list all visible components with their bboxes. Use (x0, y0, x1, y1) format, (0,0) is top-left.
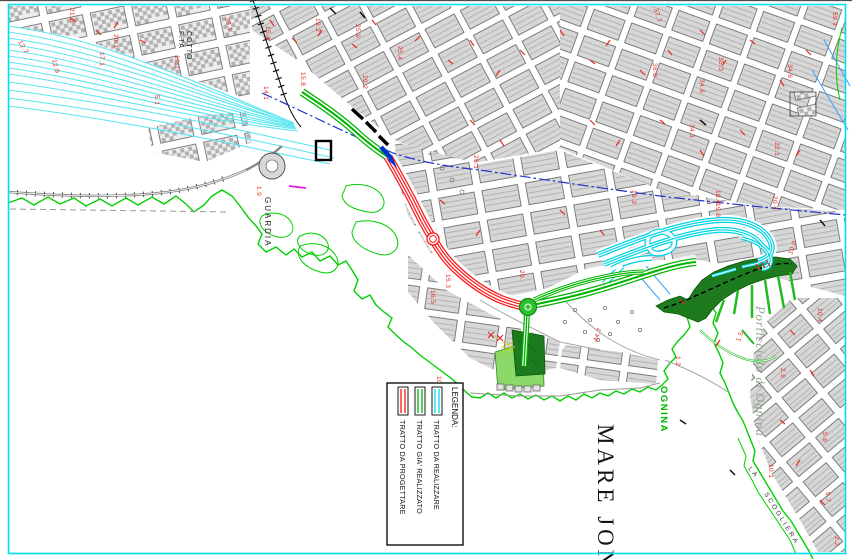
elevation-label: 44.7 (592, 327, 603, 343)
elevation-label: 15.8 (299, 72, 306, 86)
checker-building (790, 92, 816, 116)
elevation-label: 19.2 (314, 18, 321, 32)
elevation-label: 20.1 (112, 34, 119, 48)
elevation-label: 34.6 (786, 64, 793, 78)
elevation-label: 29.2 (361, 75, 368, 89)
magenta-mark (289, 186, 306, 188)
elevation-label: 59.1 (831, 12, 838, 26)
elevation-label: 21.0 (68, 8, 75, 22)
map-canvas: MARE JONIO OGNINA Porticciolo di Ognina … (0, 0, 852, 560)
green-roundabout (520, 299, 537, 316)
fta-label: F.TA (177, 31, 184, 49)
legend-swatch-green (415, 387, 425, 415)
guardia-label: GUARDIA (263, 197, 272, 247)
elevation-label: 5.6 (821, 432, 828, 442)
elevation-label: 12.9 (50, 59, 60, 75)
round-building (259, 153, 285, 179)
legend-item-progettare: TRATTO DA PROGETTARE (398, 387, 408, 515)
elevation-label: 19.8 (714, 203, 721, 217)
elevation-label: 34.6 (698, 79, 705, 93)
elevation-label: 2.9 (779, 368, 786, 378)
cotto-label: COTTO (185, 31, 192, 60)
legend-title: LEGENDA: (450, 387, 459, 427)
elevation-label: 17.1 (98, 52, 105, 66)
elevation-label: 36.0 (651, 63, 658, 77)
legend-item-gia-realizzato: TRATTO GIA' REALIZZATO (415, 387, 425, 514)
legend-label: TRATTO DA PROGETTARE (398, 420, 407, 515)
ognina-label: OGNINA (658, 386, 669, 433)
red-roundabout (427, 233, 439, 245)
elevation-label: 20. (518, 270, 525, 280)
elevation-label: 26.1 (472, 155, 479, 169)
elevation-label: 35.3 (717, 57, 724, 71)
elevation-label: 10.4 (816, 308, 823, 322)
elevation-label: 19.1 (173, 55, 180, 69)
legend: LEGENDA: TRATTO DA REALIZZARE TRATTO GIA… (387, 383, 463, 545)
elevation-label: 22.1 (773, 142, 780, 156)
legend-swatch-cyan (432, 387, 442, 415)
elevation-label: 10.1 (767, 464, 774, 478)
elevation-label: 19.3 (630, 190, 637, 204)
elevation-label: 34.1 (688, 124, 695, 138)
elevation-label: 25.9 (354, 24, 361, 38)
elevation-label: 20.4 (771, 196, 778, 210)
elevation-label: 15.8 (264, 26, 271, 40)
elevation-label: 9.7 (824, 492, 831, 502)
porticciolo-label: Porticciolo di Ognina (753, 305, 767, 437)
elevation-label: 1.9 (255, 186, 262, 196)
elevation-label: 12.7 (16, 40, 29, 56)
elevation-label: 25.4 (396, 46, 403, 60)
city-map: MARE JONIO OGNINA Porticciolo di Ognina … (0, 0, 852, 560)
legend-item-realizzare: TRATTO DA REALIZZARE (432, 387, 442, 510)
elevation-label: 1.2 (674, 356, 681, 366)
elevation-label: 5.1 (153, 95, 160, 105)
elevation-label: 2.2 (833, 536, 840, 546)
elevation-label: 14.1 (262, 86, 269, 100)
legend-label: TRATTO GIA' REALIZZATO (415, 420, 424, 514)
elevation-label: 16.5 (429, 290, 436, 304)
legend-swatch-red (398, 387, 408, 415)
legend-label: TRATTO DA REALIZZARE (432, 420, 441, 510)
mare-jonio-label: MARE JONIO (593, 424, 618, 560)
elevation-label: 15.3 (444, 274, 451, 288)
